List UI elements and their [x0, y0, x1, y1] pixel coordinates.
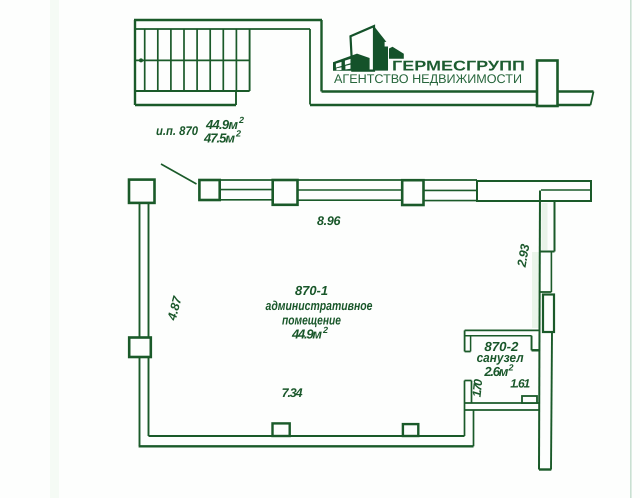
svg-text:санузел: санузел	[477, 350, 524, 365]
svg-text:помещение: помещение	[282, 313, 341, 328]
svg-text:2: 2	[238, 115, 244, 125]
svg-text:44.9м: 44.9м	[291, 327, 322, 342]
svg-text:1.61: 1.61	[510, 377, 530, 391]
svg-text:1.70: 1.70	[470, 378, 486, 398]
svg-text:2: 2	[508, 363, 514, 373]
svg-text:2: 2	[235, 129, 241, 139]
svg-text:АГЕНТСТВО НЕДВИЖИМОСТИ: АГЕНТСТВО НЕДВИЖИМОСТИ	[334, 72, 522, 86]
svg-text:870-1: 870-1	[295, 283, 328, 298]
svg-text:2: 2	[322, 325, 328, 335]
svg-text:2.6м: 2.6м	[483, 364, 508, 379]
svg-text:7.34: 7.34	[282, 386, 303, 400]
svg-text:47.5м: 47.5м	[203, 131, 235, 146]
svg-text:административное: административное	[266, 298, 373, 313]
svg-text:8.96: 8.96	[317, 214, 342, 228]
svg-text:и.п. 870: и.п. 870	[156, 124, 198, 138]
